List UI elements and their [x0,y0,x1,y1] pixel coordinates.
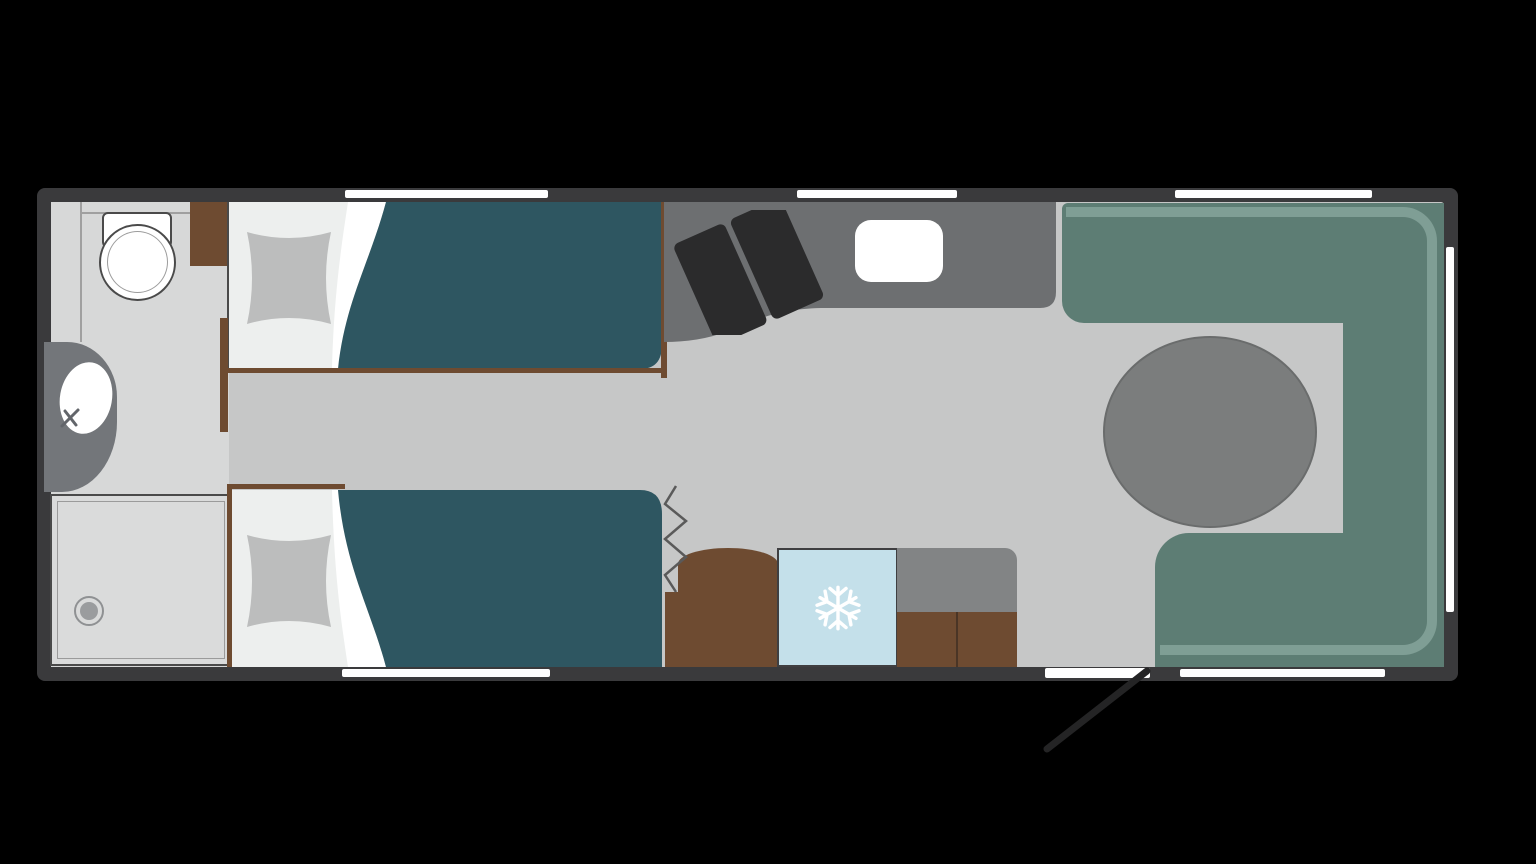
entry [0,0,1536,864]
floorplan-canvas [0,0,1536,864]
entry-door-swing [1025,663,1170,763]
